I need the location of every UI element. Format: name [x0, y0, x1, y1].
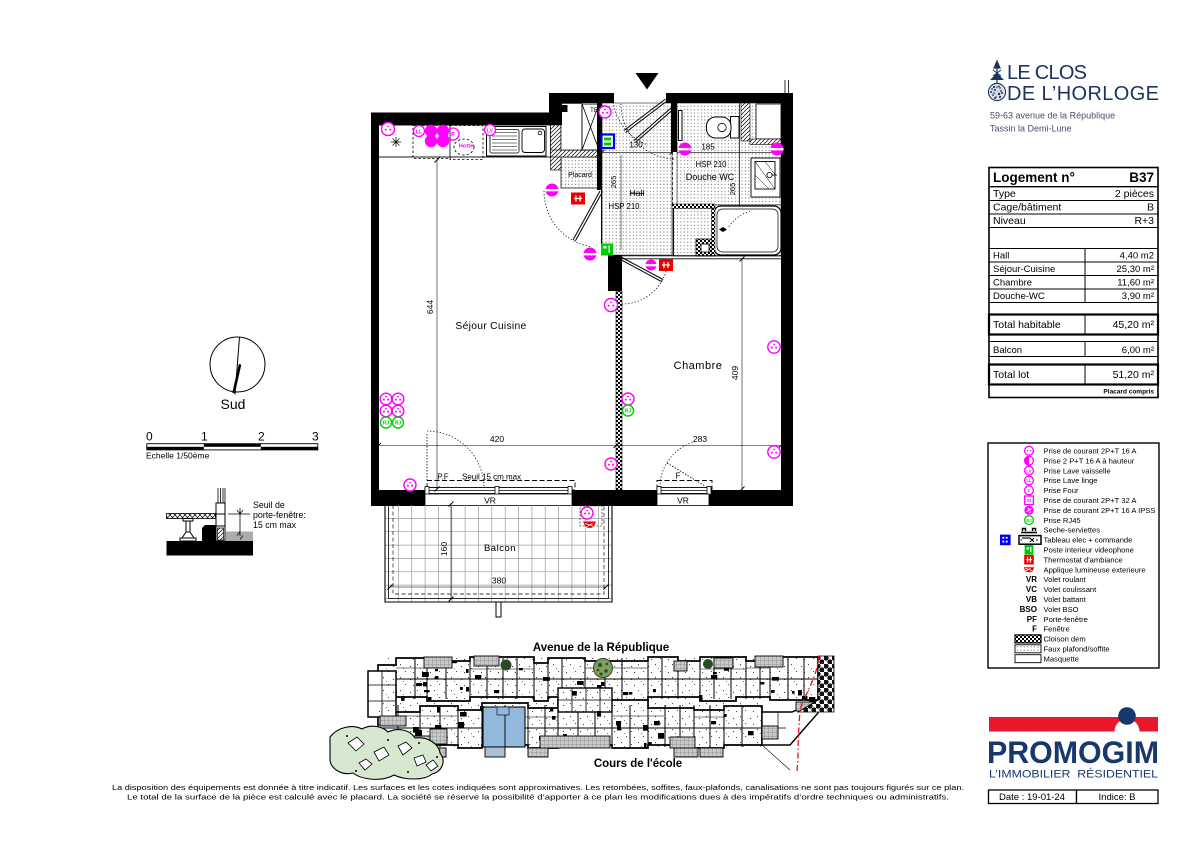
svg-text:Tableau elec + commande: Tableau elec + commande	[1044, 536, 1133, 545]
svg-text:Prise de courant 2P+T 16 A IPS: Prise de courant 2P+T 16 A IPSS	[1044, 506, 1156, 515]
svg-text:DE L’HORLOGE: DE L’HORLOGE	[1007, 83, 1159, 105]
svg-text:VB: VB	[1026, 595, 1037, 604]
svg-text:VR: VR	[1026, 575, 1037, 584]
svg-text:Avenue de la République: Avenue de la République	[533, 642, 669, 654]
svg-text:Indice: B: Indice: B	[1099, 792, 1136, 803]
svg-text:Type: Type	[993, 188, 1016, 200]
svg-text:Douche WC: Douche WC	[686, 172, 735, 182]
svg-text:Balcon: Balcon	[484, 543, 516, 554]
svg-text:Séjour Cuisine: Séjour Cuisine	[455, 321, 526, 332]
svg-text:0: 0	[146, 430, 153, 444]
svg-text:RJ: RJ	[1026, 518, 1032, 523]
svg-text:265: 265	[609, 176, 618, 189]
svg-text:TE: TE	[590, 108, 598, 114]
svg-text:L’IMMOBILIER RÉSIDENTIEL: L’IMMOBILIER RÉSIDENTIEL	[989, 768, 1158, 781]
svg-text:VR: VR	[484, 496, 496, 506]
svg-text:Volet battant: Volet battant	[1044, 595, 1087, 604]
svg-text:PROMOGIM: PROMOGIM	[987, 734, 1159, 770]
svg-text:59-63 avenue de la République: 59-63 avenue de la République	[990, 111, 1115, 121]
svg-text:2 pièces: 2 pièces	[1115, 188, 1154, 200]
svg-text:Prise de courant 2P+T 32 A: Prise de courant 2P+T 32 A	[1044, 496, 1138, 505]
svg-text:Le total de la surface de la p: Le total de la surface de la pièce est c…	[127, 793, 949, 802]
svg-text:Prise Lave vaisselle: Prise Lave vaisselle	[1044, 466, 1111, 475]
svg-text:Niveau: Niveau	[993, 215, 1026, 227]
svg-text:Chambre: Chambre	[674, 360, 723, 372]
svg-text:644: 644	[425, 300, 435, 314]
svg-text:265: 265	[728, 183, 737, 196]
svg-text:F: F	[451, 133, 455, 139]
svg-text:130: 130	[629, 141, 643, 150]
svg-text:Prise RJ45: Prise RJ45	[1044, 516, 1081, 525]
svg-text:F: F	[1028, 488, 1031, 494]
svg-text:185: 185	[701, 143, 715, 152]
svg-text:Total lot: Total lot	[993, 369, 1029, 381]
svg-text:VC: VC	[1026, 585, 1037, 594]
svg-text:RJ: RJ	[383, 421, 390, 427]
svg-text:Fenêtre: Fenêtre	[1044, 625, 1070, 634]
svg-text:Thermostat d'ambiance: Thermostat d'ambiance	[1044, 555, 1123, 564]
svg-text:LL: LL	[1026, 478, 1032, 483]
svg-text:420: 420	[490, 434, 504, 444]
svg-text:Masquette: Masquette	[1044, 654, 1079, 663]
svg-text:LV: LV	[487, 129, 494, 135]
svg-text:Echelle 1/50ème: Echelle 1/50ème	[146, 451, 210, 461]
svg-text:VR: VR	[677, 496, 689, 506]
svg-text:LE CLOS: LE CLOS	[1007, 62, 1087, 84]
svg-text:Porte-fenêtre: Porte-fenêtre	[1044, 615, 1088, 624]
svg-text:380: 380	[492, 576, 506, 586]
svg-text:3: 3	[312, 430, 319, 444]
svg-text:Balcon: Balcon	[993, 345, 1022, 356]
svg-text:6,00 m²: 6,00 m²	[1122, 345, 1154, 356]
svg-text:Placard compris: Placard compris	[1103, 389, 1154, 396]
svg-text:Seche-serviettes: Seche-serviettes	[1044, 526, 1101, 535]
svg-text:32: 32	[1027, 498, 1032, 503]
svg-text:porte-fenêtre:: porte-fenêtre:	[253, 510, 306, 520]
svg-text:Volet roulant: Volet roulant	[1044, 575, 1087, 584]
svg-text:Applique lumineuse exterieure: Applique lumineuse exterieure	[1044, 565, 1146, 574]
svg-text:Seuil 15 cm max: Seuil 15 cm max	[462, 473, 521, 482]
svg-text:Date : 19-01-24: Date : 19-01-24	[999, 792, 1065, 803]
svg-text:HSP 210: HSP 210	[695, 160, 727, 169]
svg-text:15 cm max: 15 cm max	[253, 520, 297, 530]
svg-text:Volet BSO: Volet BSO	[1044, 605, 1079, 614]
svg-text:Hall: Hall	[993, 251, 1009, 262]
svg-text:RJ: RJ	[625, 409, 632, 415]
svg-text:P.F: P.F	[437, 473, 449, 482]
svg-text:Faux plafond/soffite: Faux plafond/soffite	[1044, 645, 1110, 654]
svg-text:Logement n°: Logement n°	[993, 170, 1075, 185]
svg-text:Hotte: Hotte	[459, 144, 475, 150]
svg-text:Volet coulissant: Volet coulissant	[1044, 585, 1098, 594]
svg-text:BSO: BSO	[1020, 605, 1037, 614]
svg-text:45,20 m²: 45,20 m²	[1113, 319, 1155, 331]
svg-text:Seuil de: Seuil de	[253, 500, 285, 510]
svg-text:RJ: RJ	[395, 421, 402, 427]
svg-text:F: F	[1032, 625, 1037, 634]
svg-text:B: B	[1147, 202, 1154, 214]
svg-text:160: 160	[439, 542, 449, 556]
svg-text:11,60 m²: 11,60 m²	[1117, 278, 1154, 289]
svg-text:Prise Lave linge: Prise Lave linge	[1044, 476, 1098, 485]
svg-text:4,40 m2: 4,40 m2	[1120, 251, 1154, 262]
svg-text:25,30 m²: 25,30 m²	[1117, 264, 1155, 275]
svg-text:Cage/bâtiment: Cage/bâtiment	[993, 202, 1061, 214]
svg-text:LL: LL	[416, 130, 423, 136]
svg-text:Cloison dem: Cloison dem	[1044, 635, 1086, 644]
svg-text:Prise 2 P+T 16 A à hauteur: Prise 2 P+T 16 A à hauteur	[1044, 456, 1135, 465]
svg-text:PF: PF	[1027, 615, 1037, 624]
svg-text:2: 2	[258, 430, 265, 444]
svg-text:Placard: Placard	[568, 172, 592, 179]
svg-text:Douche-WC: Douche-WC	[993, 291, 1045, 302]
svg-text:Poste interieur videophone: Poste interieur videophone	[1044, 546, 1134, 555]
svg-text:Prise Four: Prise Four	[1044, 486, 1079, 495]
svg-text:1: 1	[201, 430, 208, 444]
svg-text:283: 283	[693, 434, 707, 444]
svg-text:F: F	[676, 472, 681, 481]
svg-text:Hall: Hall	[630, 188, 645, 198]
svg-text:B37: B37	[1129, 170, 1154, 185]
svg-text:3,90 m²: 3,90 m²	[1122, 291, 1154, 302]
svg-text:LV: LV	[1026, 468, 1031, 473]
svg-text:Sud: Sud	[221, 396, 246, 412]
svg-text:Tassin la Demi-Lune: Tassin la Demi-Lune	[990, 124, 1072, 134]
svg-text:Chambre: Chambre	[993, 278, 1032, 289]
svg-text:51,20 m²: 51,20 m²	[1113, 369, 1155, 381]
svg-text:La disposition des équipements: La disposition des équipements est donné…	[112, 783, 964, 792]
svg-text:HSP 210: HSP 210	[608, 202, 640, 211]
svg-text:Total habitable: Total habitable	[993, 319, 1061, 331]
svg-text:R+3: R+3	[1134, 215, 1154, 227]
svg-text:Séjour-Cuisine: Séjour-Cuisine	[993, 264, 1055, 275]
svg-text:Cours de l'école: Cours de l'école	[594, 758, 682, 770]
svg-text:409: 409	[730, 366, 740, 380]
svg-text:Prise de courant 2P+T 16 A: Prise de courant 2P+T 16 A	[1044, 447, 1138, 456]
